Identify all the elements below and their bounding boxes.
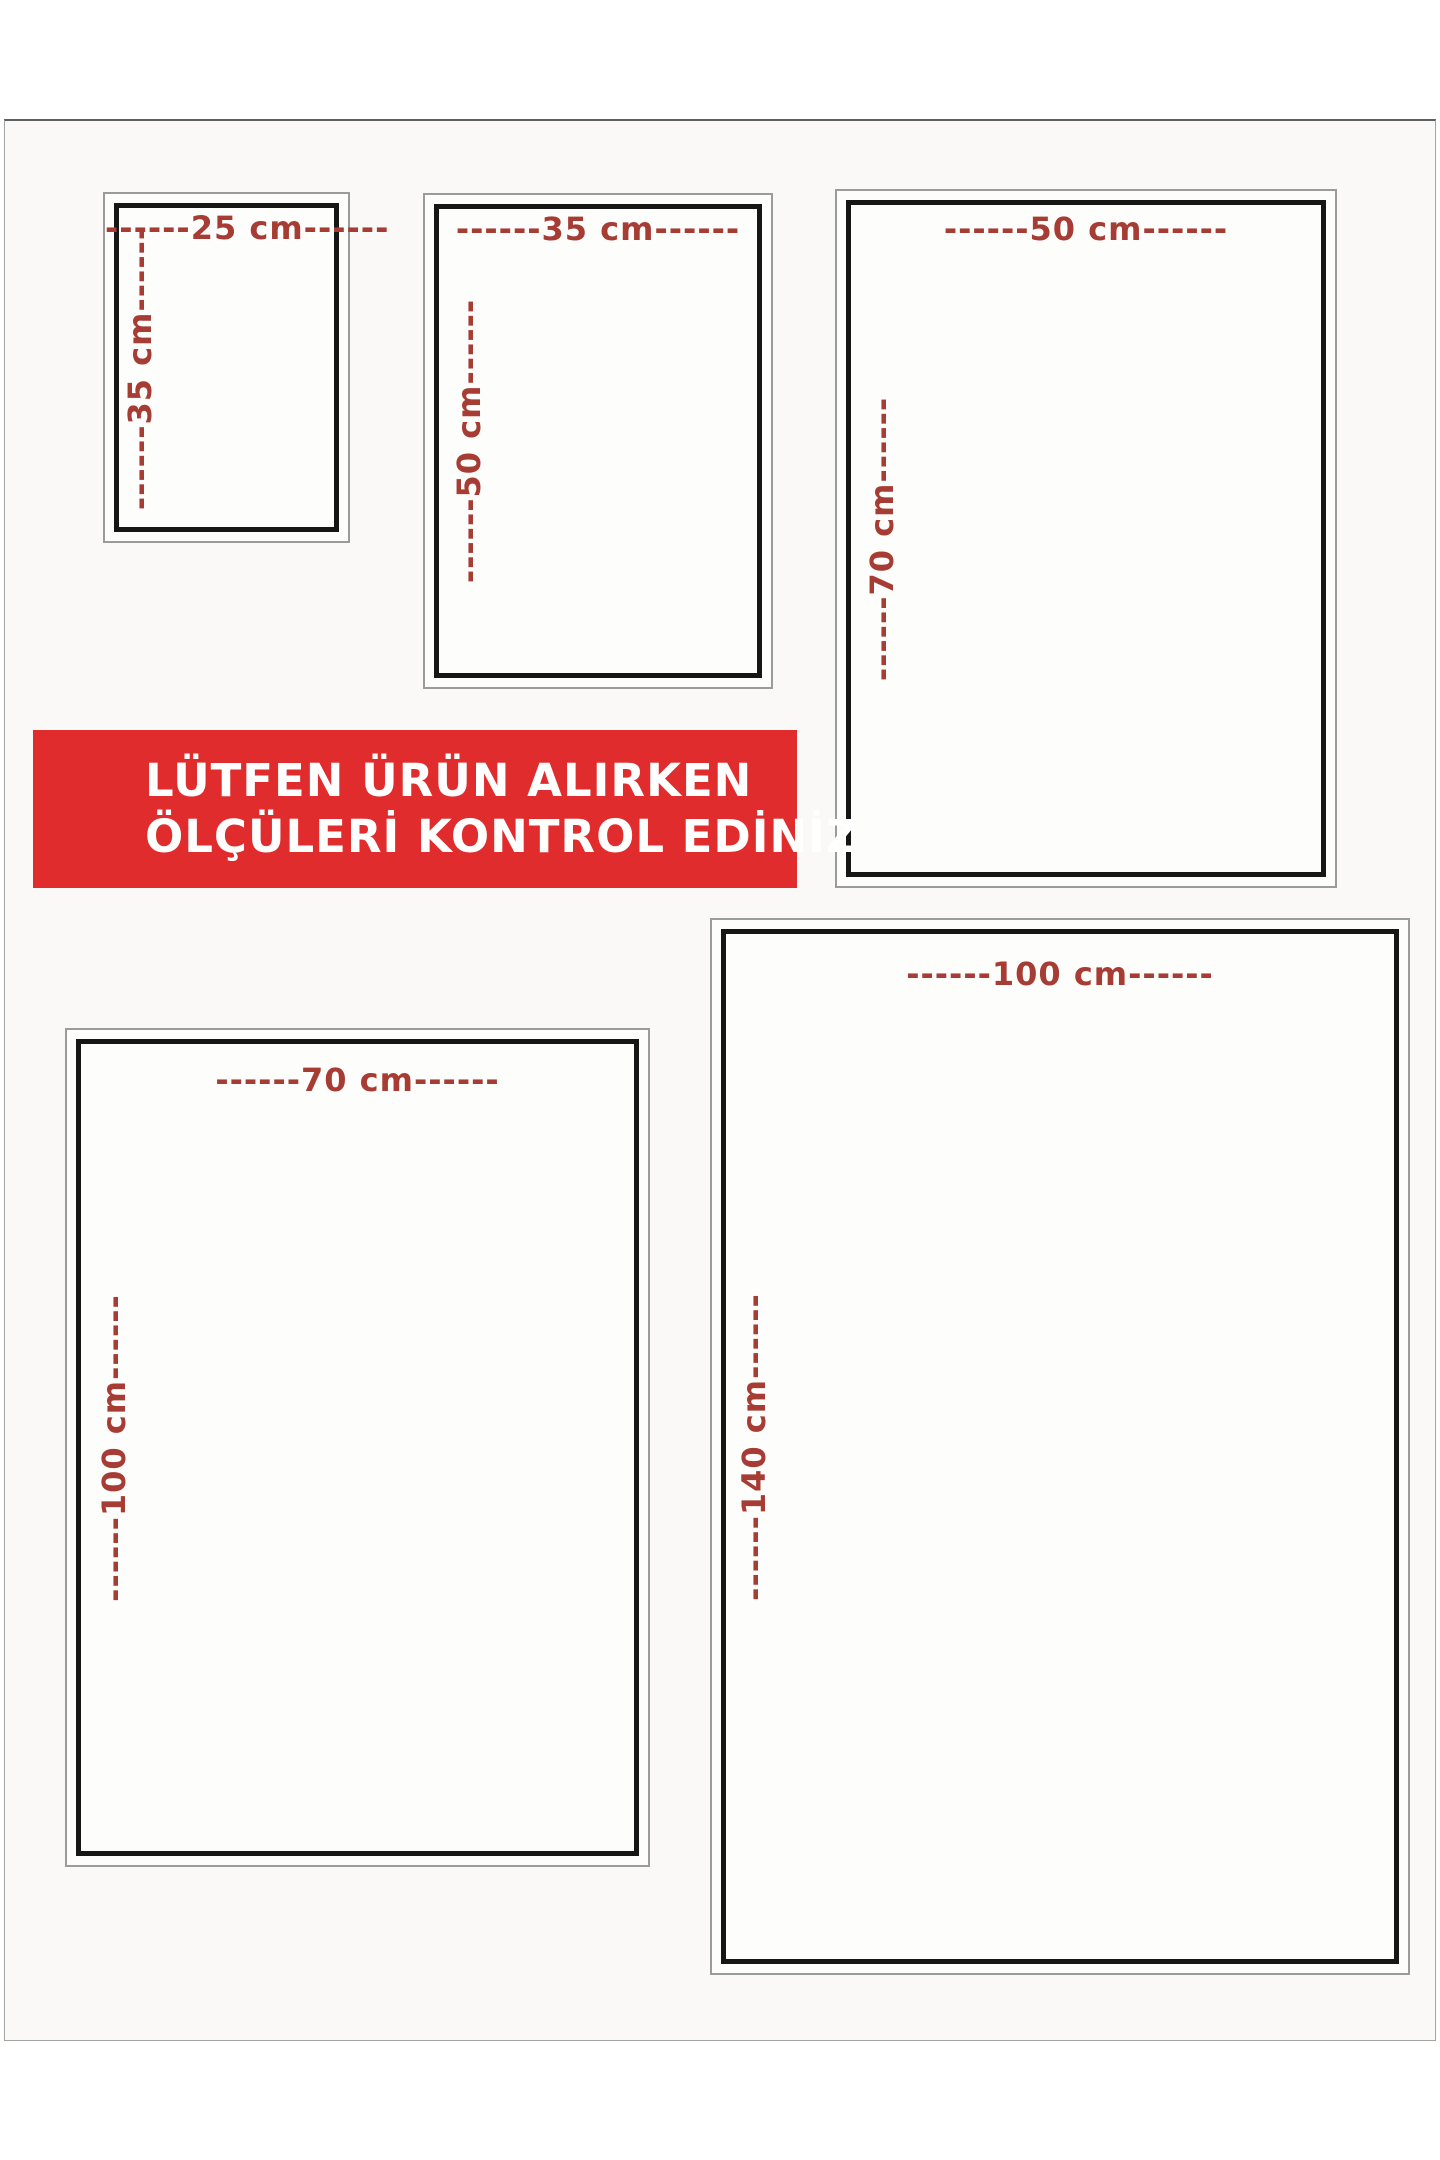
size-box-35x50-height-label: ------50 cm------ — [451, 299, 487, 583]
size-chart-page: ------25 cm------ ------35 cm------ ----… — [0, 0, 1440, 2160]
size-box-100x140-height-label-wrap: ------140 cm------ — [732, 920, 776, 1973]
size-box-35x50-height-label-wrap: ------50 cm------ — [447, 195, 491, 687]
size-box-25x35-height-label-wrap: ------35 cm------ — [118, 194, 162, 541]
size-box-50x70-inner-frame — [846, 200, 1326, 877]
size-box-100x140-inner-frame — [721, 929, 1399, 1964]
notice-line-1: LÜTFEN ÜRÜN ALIRKEN — [145, 753, 797, 809]
size-box-100x140-height-label: ------140 cm------ — [736, 1293, 772, 1601]
notice-line-2: ÖLÇÜLERİ KONTROL EDİNİZ — [145, 809, 797, 865]
size-box-70x100: ------70 cm------ ------100 cm------ — [65, 1028, 650, 1867]
size-box-70x100-width-label: ------70 cm------ — [67, 1062, 648, 1098]
size-box-100x140: ------100 cm------ ------140 cm------ — [710, 918, 1410, 1975]
size-box-100x140-width-label: ------100 cm------ — [712, 956, 1408, 992]
size-box-25x35: ------25 cm------ ------35 cm------ — [103, 192, 350, 543]
size-box-50x70-width-label: ------50 cm------ — [837, 211, 1335, 247]
size-box-70x100-height-label-wrap: ------100 cm------ — [92, 1030, 136, 1865]
size-box-70x100-inner-frame — [76, 1039, 639, 1856]
notice-banner: LÜTFEN ÜRÜN ALIRKEN ÖLÇÜLERİ KONTROL EDİ… — [33, 730, 797, 888]
size-box-50x70-height-label: ------70 cm------ — [864, 396, 900, 680]
size-box-50x70: ------50 cm------ ------70 cm------ — [835, 189, 1337, 888]
size-box-35x50: ------35 cm------ ------50 cm------ — [423, 193, 773, 689]
size-box-50x70-height-label-wrap: ------70 cm------ — [860, 191, 904, 886]
size-box-70x100-height-label: ------100 cm------ — [96, 1294, 132, 1602]
size-box-25x35-height-label: ------35 cm------ — [122, 225, 158, 509]
